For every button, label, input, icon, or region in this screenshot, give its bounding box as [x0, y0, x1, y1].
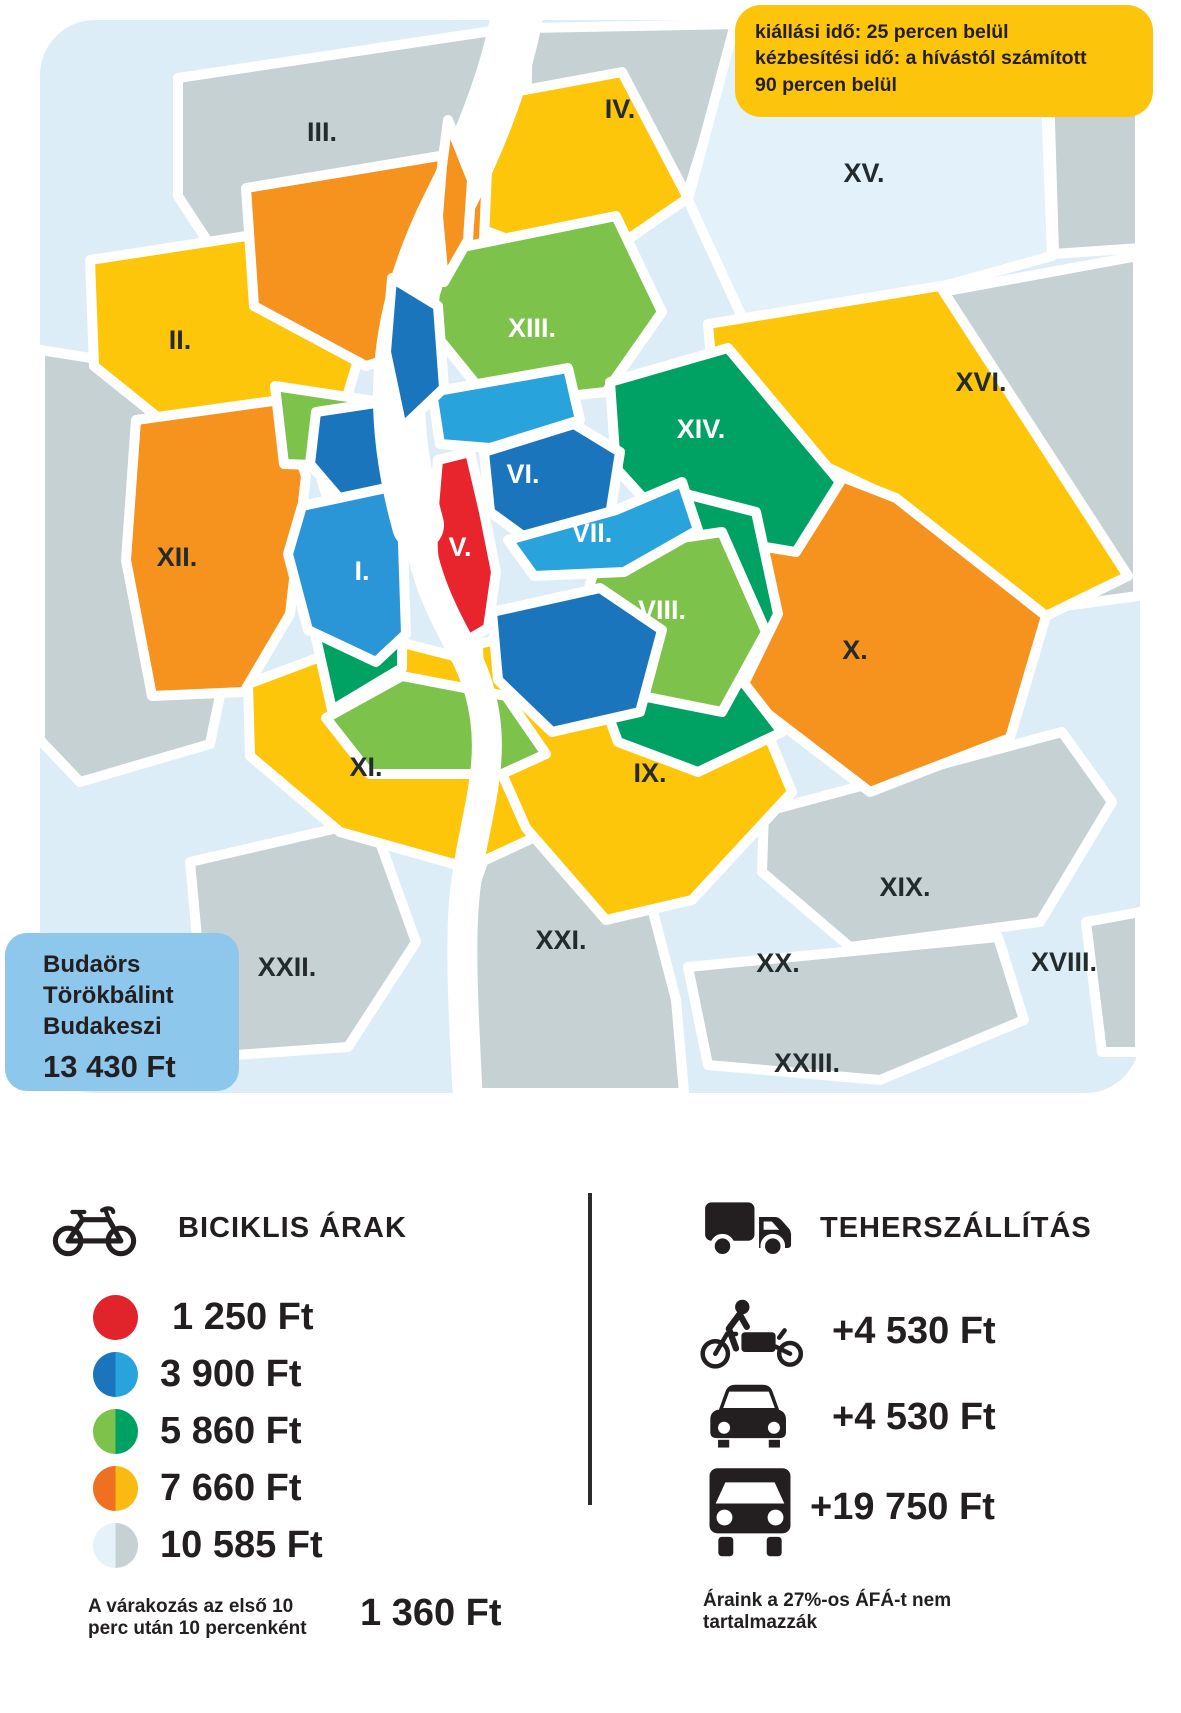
- waiting-fee-note: A várakozás az első 10 perc után 10 perc…: [88, 1596, 307, 1641]
- district-label-xii: XII.: [157, 542, 198, 572]
- tier-price: 3 900 Ft: [160, 1353, 302, 1396]
- truck-icon: [706, 1466, 794, 1567]
- district-label-xx: XX.: [756, 948, 800, 978]
- column-divider: [588, 1193, 592, 1505]
- delivery-time-box: kiállási idő: 25 percen belül kézbesítés…: [735, 5, 1153, 117]
- tier-price: 7 660 Ft: [160, 1467, 302, 1510]
- zone-dot-paleblue: [93, 1523, 138, 1568]
- zone-dot-blue: [93, 1352, 138, 1397]
- price-tier-row: 1 250 Ft: [93, 1294, 314, 1340]
- zone-dot-green: [93, 1409, 138, 1454]
- freight-title: TEHERSZÁLLÍTÁS: [820, 1212, 1092, 1245]
- district-label-xiv: XIV.: [677, 414, 726, 444]
- price-tier-row: 5 860 Ft: [93, 1408, 302, 1454]
- outside-zone-price-box: Budaörs Törökbálint Budakeszi 13 430 Ft: [5, 933, 239, 1091]
- delivery-time-line: kiállási idő: 25 percen belül: [755, 19, 1133, 45]
- vat-note: Áraink a 27%-os ÁFÁ-t nem tartalmazzák: [703, 1590, 951, 1635]
- bike-prices-title: BICIKLIS ÁRAK: [178, 1212, 407, 1245]
- zone-dot-orange: [93, 1466, 138, 1511]
- car-price: +4 530 Ft: [832, 1396, 996, 1439]
- cargo-bike-icon: [700, 1296, 808, 1377]
- district-label-xxiii: XXIII.: [774, 1048, 840, 1078]
- vat-note-line: Áraink a 27%-os ÁFÁ-t nem: [703, 1590, 951, 1612]
- district-label-xv: XV.: [843, 158, 884, 188]
- district-label-xvi: XVI.: [955, 367, 1006, 397]
- cargo-bike-price: +4 530 Ft: [832, 1310, 996, 1353]
- price-zone-infographic: { "delivery_info_box": { "bg_color": "#f…: [0, 0, 1181, 1713]
- outside-town: Törökbálint: [43, 980, 239, 1011]
- outside-town: Budaörs: [43, 949, 239, 980]
- price-tier-row: 3 900 Ft: [93, 1351, 302, 1397]
- delivery-time-line: kézbesítési idő: a hívástól számított: [755, 45, 1133, 71]
- waiting-fee-note-line: perc után 10 percenként: [88, 1618, 307, 1640]
- district-label-xxii: XXII.: [258, 952, 317, 982]
- district-label-vi: VI.: [506, 459, 539, 489]
- vat-note-line: tartalmazzák: [703, 1612, 951, 1634]
- district-label-xviii: XVIII.: [1031, 947, 1097, 977]
- outside-zone-price: 13 430 Ft: [43, 1049, 239, 1085]
- price-tier-row: 7 660 Ft: [93, 1465, 302, 1511]
- tier-price: 1 250 Ft: [160, 1296, 314, 1339]
- district-label-xiii: XIII.: [508, 313, 556, 343]
- car-icon: [706, 1380, 792, 1453]
- delivery-time-line: 90 percen belül: [755, 72, 1133, 98]
- zone-dot-red: [93, 1295, 138, 1340]
- bicycle-icon: [52, 1200, 137, 1263]
- district-label-iv: IV.: [605, 94, 636, 124]
- delivery-truck-icon: [703, 1195, 795, 1264]
- district-label-xxi: XXI.: [535, 925, 586, 955]
- waiting-fee-price: 1 360 Ft: [360, 1592, 502, 1635]
- truck-price: +19 750 Ft: [810, 1486, 995, 1529]
- district-label-v: V.: [448, 532, 471, 562]
- tier-price: 10 585 Ft: [160, 1524, 323, 1567]
- district-label-ii: II.: [169, 325, 192, 355]
- district-label-iii: III.: [307, 117, 337, 147]
- tier-price: 5 860 Ft: [160, 1410, 302, 1453]
- district-label-i: I.: [354, 556, 369, 586]
- district-label-xi: XI.: [349, 752, 382, 782]
- price-tier-row: 10 585 Ft: [93, 1522, 323, 1568]
- district-label-vii: VII.: [572, 518, 613, 548]
- outside-town: Budakeszi: [43, 1011, 239, 1042]
- district-label-ix: IX.: [633, 758, 666, 788]
- district-label-x: X.: [842, 635, 868, 665]
- district-label-xix: XIX.: [879, 872, 930, 902]
- district-label-viii: VIII.: [638, 595, 686, 625]
- waiting-fee-note-line: A várakozás az első 10: [88, 1596, 307, 1618]
